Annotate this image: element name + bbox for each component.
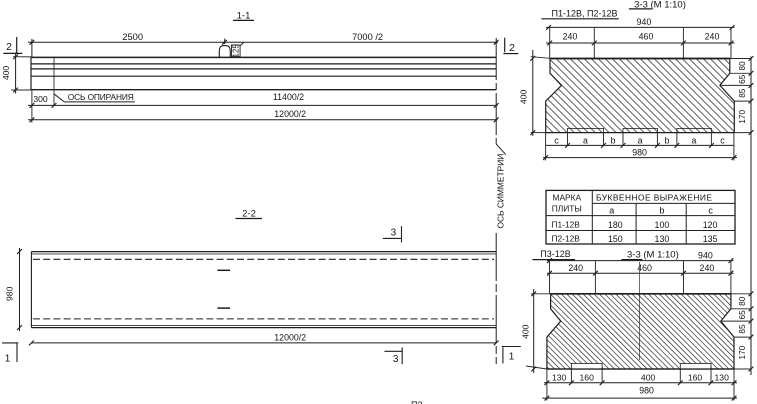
svg-text:a: a [638,135,643,145]
svg-text:a: a [583,135,588,145]
svg-text:80: 80 [738,296,747,306]
svg-text:940: 940 [698,251,713,261]
svg-text:c: c [708,206,713,216]
svg-text:400: 400 [1,66,11,81]
svg-text:80: 80 [738,61,747,71]
svg-text:3: 3 [391,228,397,239]
svg-text:400: 400 [521,324,531,339]
svg-text:240: 240 [700,263,715,273]
svg-text:3: 3 [393,354,399,365]
svg-text:85: 85 [738,88,747,98]
svg-text:c: c [554,135,559,145]
svg-text:2500: 2500 [122,32,143,42]
svg-text:65: 65 [738,74,747,84]
svg-text:П3 . .: П3 . . [411,400,432,404]
svg-text:П3-12В: П3-12В [540,249,571,259]
svg-text:170: 170 [738,110,747,124]
svg-text:1: 1 [509,351,515,362]
svg-text:240: 240 [705,32,720,42]
svg-text:П1-12В: П1-12В [552,219,581,229]
svg-text:7000 /2: 7000 /2 [352,32,383,42]
svg-text:a: a [609,206,614,216]
svg-text:2: 2 [509,42,515,54]
svg-text:130: 130 [715,373,730,383]
svg-text:65: 65 [738,310,747,320]
svg-text:МАРКА: МАРКА [552,193,581,203]
svg-text:980: 980 [5,286,15,301]
svg-text:1: 1 [5,354,11,365]
svg-text:ПЛИТЫ: ПЛИТЫ [552,204,582,214]
svg-text:b: b [611,135,616,145]
svg-text:125: 125 [232,44,241,58]
svg-text:240: 240 [568,263,583,273]
svg-text:2: 2 [6,41,12,53]
svg-text:150: 150 [608,234,623,244]
svg-text:170: 170 [738,345,747,359]
svg-text:400: 400 [641,373,656,383]
svg-text:12000/2: 12000/2 [274,333,306,343]
svg-text:980: 980 [639,385,654,395]
svg-text:b: b [665,135,670,145]
svg-text:240: 240 [563,32,578,42]
svg-text:БУКВЕННОЕ ВЫРАЖЕНИЕ: БУКВЕННОЕ ВЫРАЖЕНИЕ [596,193,712,203]
svg-text:c: c [720,135,725,145]
svg-text:180: 180 [608,220,623,230]
svg-text:ОСЬ ОПИРАНИЯ: ОСЬ ОПИРАНИЯ [68,92,134,102]
svg-text:1-1: 1-1 [237,10,251,21]
svg-text:130: 130 [655,234,670,244]
svg-text:100: 100 [655,220,670,230]
svg-text:ОСЬ СИММЕТРИИ: ОСЬ СИММЕТРИИ [496,154,506,229]
svg-text:a: a [692,135,697,145]
svg-text:11400/2: 11400/2 [273,92,304,102]
svg-text:160: 160 [580,373,595,383]
svg-text:П1-12В, П2-12В: П1-12В, П2-12В [552,9,618,19]
svg-text:460: 460 [639,32,654,42]
svg-text:980: 980 [632,147,647,157]
svg-text:130: 130 [552,373,567,383]
svg-text:135: 135 [703,234,718,244]
svg-text:120: 120 [703,220,718,230]
svg-text:12000/2: 12000/2 [274,109,306,119]
svg-text:3-3 (М 1:10): 3-3 (М 1:10) [627,249,679,260]
svg-text:b: b [659,206,664,216]
svg-text:П2-12В: П2-12В [552,234,581,244]
svg-text:2-2: 2-2 [242,209,256,220]
svg-text:85: 85 [738,324,747,334]
svg-text:160: 160 [688,373,703,383]
svg-text:400: 400 [519,90,529,105]
svg-text:940: 940 [637,17,652,27]
svg-text:300: 300 [33,94,48,104]
